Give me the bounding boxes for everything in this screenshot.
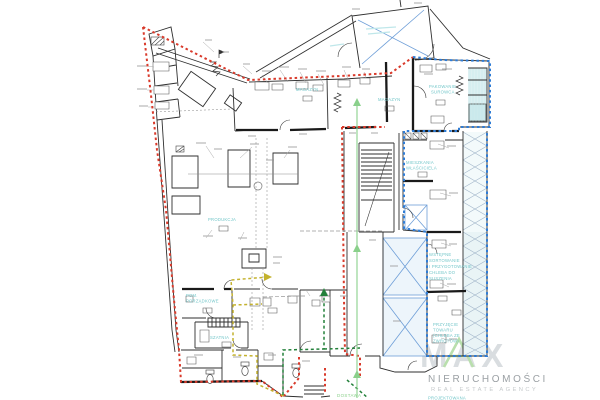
room-label-pakowanie: PAKOWANIE bbox=[429, 84, 456, 89]
room-label-przyjecie: PRZYJĘCIE bbox=[433, 322, 458, 327]
column-circle bbox=[254, 182, 262, 190]
floor-plan-drawing: MAX NIERUCHOMOŚCI REAL ESTATE AGENCY bbox=[0, 0, 600, 400]
svg-text:PORZĄDKOWE: PORZĄDKOWE bbox=[186, 299, 219, 304]
room-label-magazyn-right: MAGAZYN bbox=[378, 97, 400, 102]
svg-text:SUROWCA: SUROWCA bbox=[431, 90, 455, 95]
room-label-produkcja: PRODUKCJA bbox=[208, 217, 236, 222]
label-projektowana: PROJEKTOWANA bbox=[428, 396, 466, 400]
svg-text:I PRZYGOTOWANIE: I PRZYGOTOWANIE bbox=[429, 264, 472, 269]
room-label-magazyn-left: MAGAZYN bbox=[296, 87, 318, 92]
svg-text:WŁAŚCICIELA: WŁAŚCICIELA bbox=[406, 166, 437, 171]
svg-text:SUSZENIA: SUSZENIA bbox=[429, 276, 452, 281]
svg-text:SORTOWANIE: SORTOWANIE bbox=[429, 258, 460, 263]
chimney-hatch bbox=[151, 37, 184, 152]
gate-crossing bbox=[358, 10, 428, 64]
watermark-agency-name: NIERUCHOMOŚCI bbox=[428, 372, 548, 385]
route-label-dostawa: DOSTAWA bbox=[337, 393, 361, 398]
svg-text:(CHLEBA ZE: (CHLEBA ZE bbox=[433, 333, 460, 338]
room-label-pom: POM. bbox=[186, 293, 198, 298]
yellow-route bbox=[231, 273, 286, 397]
svg-text:CHLEBA DO: CHLEBA DO bbox=[429, 270, 456, 275]
room-label-mieszkania: MIESZKANIA bbox=[406, 160, 434, 165]
svg-text:ZWROTÓW): ZWROTÓW) bbox=[433, 339, 459, 344]
watermark-tagline: REAL ESTATE AGENCY bbox=[431, 387, 538, 393]
svg-text:TOWARU: TOWARU bbox=[433, 328, 453, 333]
room-label-wstepne: WSTĘPNE bbox=[429, 252, 451, 257]
room-label-szatnia: SZATNIA bbox=[210, 335, 229, 340]
green-dark-route bbox=[283, 288, 368, 398]
